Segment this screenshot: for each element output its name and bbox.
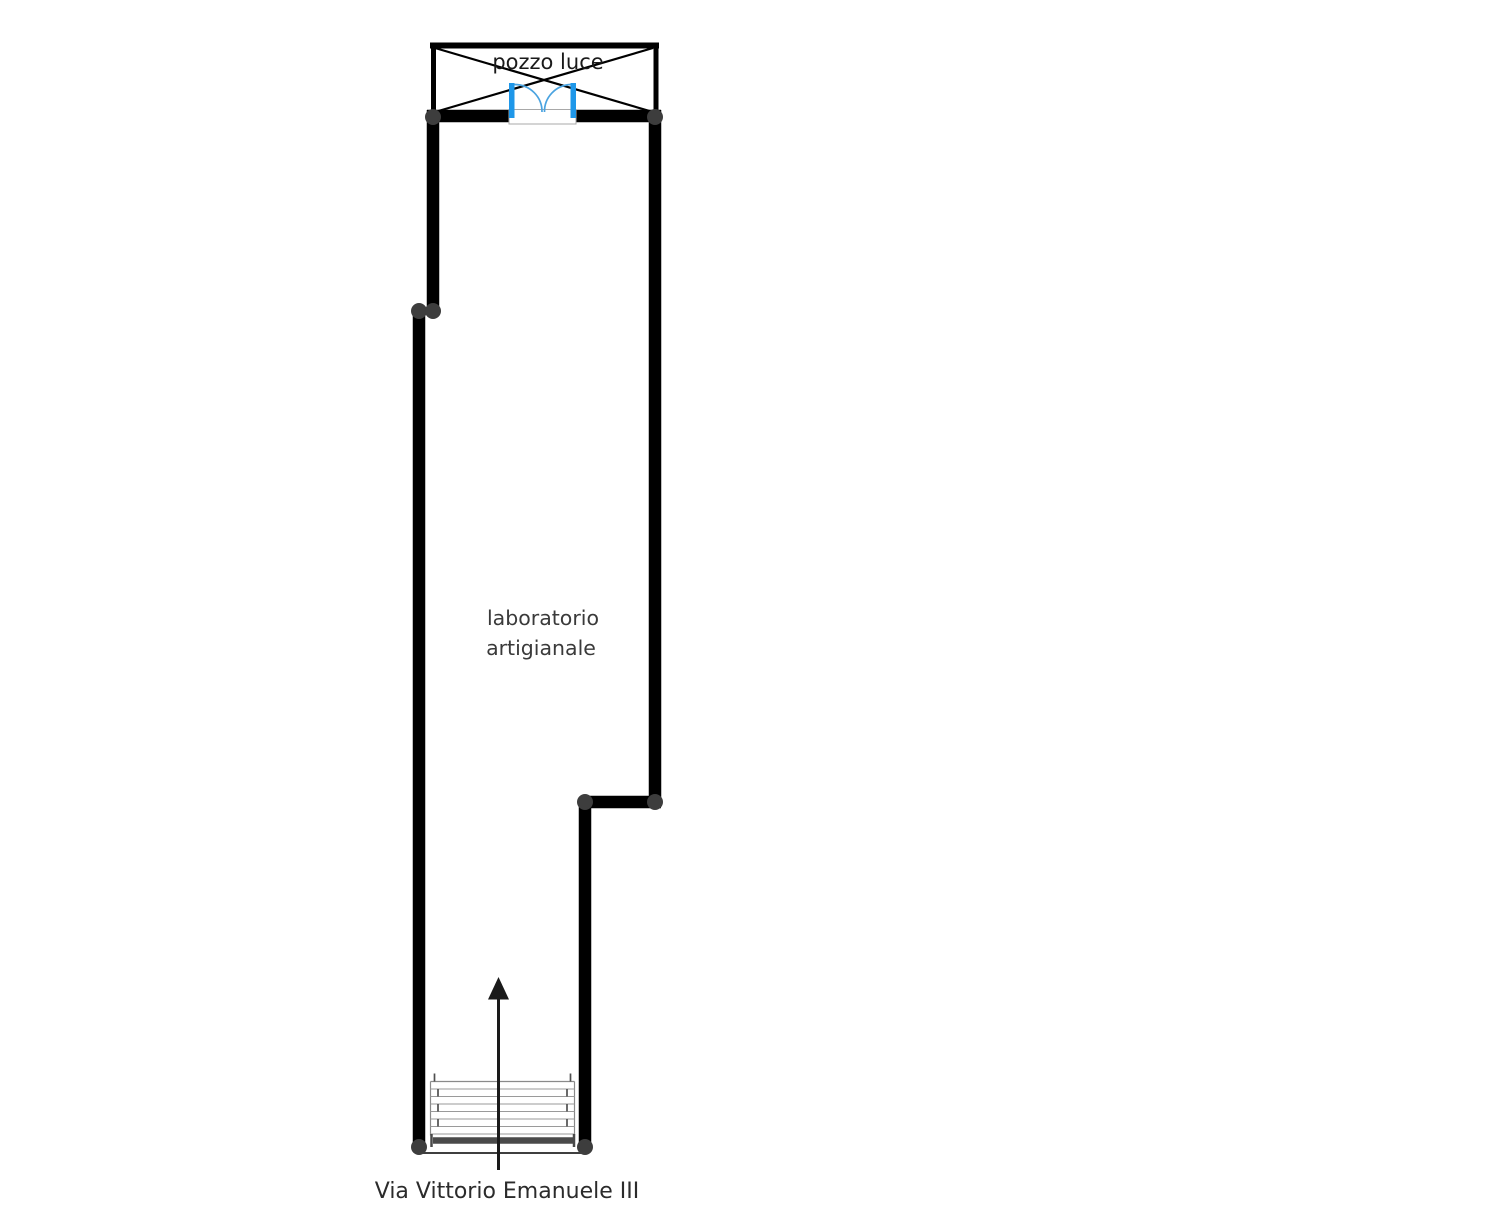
door-jamb-left — [509, 83, 515, 118]
wall-joint-dot — [577, 794, 593, 810]
floorplan-canvas: pozzo luce — [0, 0, 1500, 1223]
street-label: Via Vittorio Emanuele III — [375, 1179, 640, 1204]
light-well-box: pozzo luce — [430, 43, 659, 113]
door-jamb-right — [571, 83, 577, 118]
door-leaf-arc-right — [544, 85, 570, 113]
wall-joint-dot — [647, 794, 663, 810]
wall-joints — [411, 109, 663, 1155]
entrance-threshold — [419, 1134, 585, 1153]
floorplan-svg: pozzo luce — [0, 0, 1500, 1223]
pozzo-luce-label: pozzo luce — [492, 50, 603, 74]
staircase-icon — [431, 1074, 575, 1136]
arrow-head — [488, 977, 509, 1000]
wall-joint-dot — [411, 303, 427, 319]
wall-joint-dot — [425, 303, 441, 319]
room-label-line1: laboratorio — [487, 606, 599, 630]
wall-joint-dot — [425, 109, 441, 125]
wall-joint-dot — [647, 109, 663, 125]
room-label-line2: artigianale — [486, 636, 596, 660]
door-leaf-arc-left — [515, 85, 543, 113]
room-label: laboratorio artigianale — [486, 606, 599, 660]
double-swing-door-icon — [509, 83, 576, 124]
